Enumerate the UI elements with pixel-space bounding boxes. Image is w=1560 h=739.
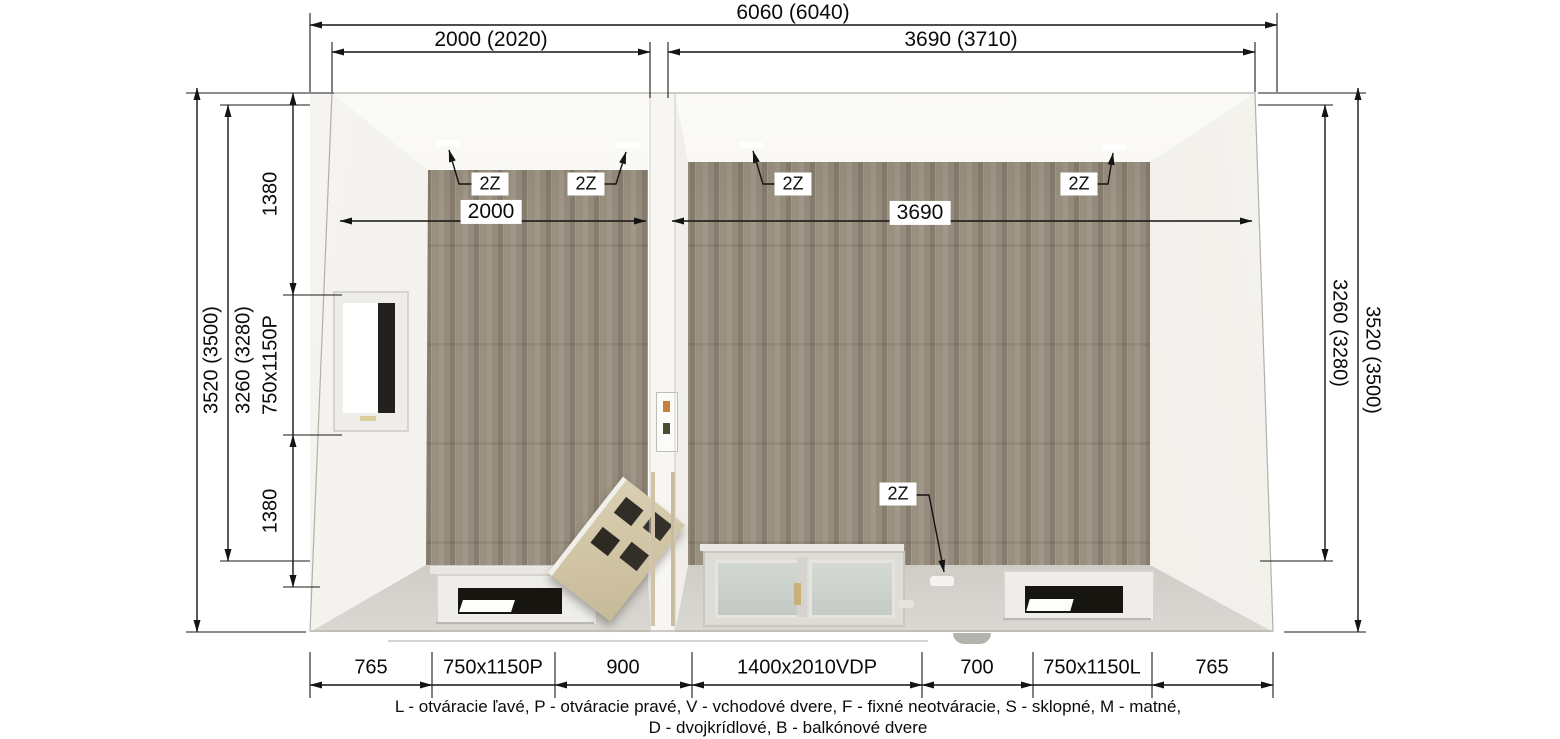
entrance-door [703, 551, 905, 627]
dim-bottom-seg-6: 750x1150L [1043, 657, 1141, 680]
bottom-left-window-sill-line [436, 622, 594, 624]
dim-left-seg-2: 750x1150P [260, 315, 283, 415]
side-window-open-sash [378, 303, 395, 413]
dim-right-inner: 3260 (3280) [1328, 279, 1351, 387]
entrance-door-ledge [700, 544, 904, 551]
legend-line-1: L - otváracie ľavé, P - otváracie pravé,… [395, 697, 1181, 717]
dim-bottom-seg-4: 1400x2010VDP [737, 657, 877, 680]
socket-label-2: 2Z [567, 173, 604, 196]
socket-label-4: 2Z [1060, 173, 1097, 196]
dim-left-seg-3: 1380 [260, 489, 283, 534]
dim-bottom-seg-2: 750x1150P [443, 657, 543, 680]
side-window-handle [360, 416, 376, 421]
bottom-left-window-light [459, 600, 515, 612]
dim-bottom-seg-3: 900 [606, 657, 639, 680]
dim-left-module: 2000 (2020) [434, 28, 547, 52]
socket-mark-4 [1102, 144, 1126, 150]
dim-left-outer: 3520 (3500) [201, 306, 224, 414]
dim-bottom-seg-7: 765 [1195, 657, 1228, 680]
socket-mark-2 [615, 142, 639, 148]
door-threshold [953, 633, 991, 644]
socket-label-1: 2Z [471, 173, 508, 196]
dim-interior-left-room: 2000 [461, 200, 522, 224]
dim-interior-right-room: 3690 [890, 201, 951, 225]
dim-total-width: 6060 (6040) [736, 1, 849, 25]
ground-shadow [388, 640, 928, 642]
electrical-panel [656, 392, 678, 452]
floor-mark [898, 600, 914, 608]
dim-left-seg-1: 1380 [260, 172, 283, 217]
bottom-right-window-light [1026, 599, 1073, 611]
dim-bottom-seg-5: 700 [960, 657, 993, 680]
socket-label-3: 2Z [774, 173, 811, 196]
legend-line-2: D - dvojkrídlové, B - balkónové dvere [649, 718, 928, 738]
partition-door-frame [651, 472, 655, 626]
dim-left-inner: 3260 (3280) [233, 306, 256, 414]
dim-bottom-seg-1: 765 [354, 657, 387, 680]
switch-mark [930, 576, 954, 586]
socket-label-5: 2Z [879, 483, 916, 506]
socket-mark-3 [739, 142, 763, 148]
dim-right-module: 3690 (3710) [904, 28, 1017, 52]
technical-drawing: 6060 (6040) 2000 (2020) 3690 (3710) 3520… [0, 0, 1560, 739]
socket-mark-1 [436, 140, 460, 146]
bottom-right-window-sill-line [1003, 618, 1151, 620]
dim-right-outer: 3520 (3500) [1361, 306, 1384, 414]
partition-door-frame-2 [671, 472, 675, 626]
